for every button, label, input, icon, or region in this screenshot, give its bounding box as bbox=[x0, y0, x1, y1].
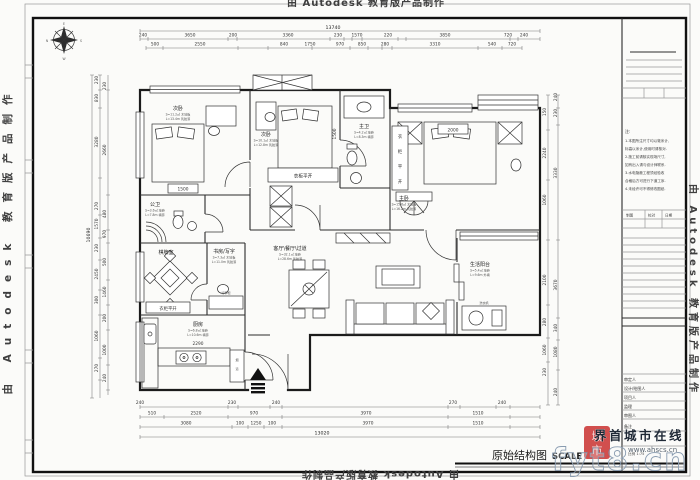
chair bbox=[265, 113, 275, 122]
mahjong-table bbox=[144, 250, 197, 309]
dim-value: 720 bbox=[508, 42, 516, 48]
dim-value: 510 bbox=[148, 411, 156, 417]
room-label-kitchen: 厨房 S=6.8㎡ 地砖 L=10.6m 墙砖 2290 bbox=[187, 321, 208, 347]
door-arc bbox=[191, 284, 207, 300]
svg-text:主卧: 主卧 bbox=[399, 195, 409, 202]
dim-value: 240 bbox=[139, 33, 147, 39]
dim-value: 970 bbox=[336, 42, 344, 48]
svg-text:L=16.2m 乳胶漆: L=16.2m 乳胶漆 bbox=[392, 206, 416, 211]
svg-text:合格后方可进行下道工序.: 合格后方可进行下道工序. bbox=[625, 178, 666, 183]
dim-value: 280 bbox=[381, 42, 389, 48]
dim-value: 3280 bbox=[94, 136, 100, 147]
flue-shaft bbox=[230, 350, 244, 382]
room-label-balcony: 生活阳台 S=5.4㎡ 地砖 L=9.6m 外墙 bbox=[470, 261, 490, 277]
dim-value: 540 bbox=[488, 42, 496, 48]
door-arc bbox=[426, 230, 456, 260]
field-label: 审图人 bbox=[624, 412, 636, 418]
inner-dim: 2290 bbox=[193, 341, 204, 347]
watermark-left: 由 Autodesk 教育版产品制作 bbox=[1, 85, 14, 394]
dim-value: 500 bbox=[151, 42, 159, 48]
floor-plan-sheet: E S W N bbox=[0, 0, 700, 480]
notes-paragraph: 1.本图所注尺寸均以毫米计, 标高以米计,使用时请核对. 2.施工前请核实现场尺… bbox=[625, 138, 669, 191]
svg-text:1.本图所注尺寸均以毫米计,: 1.本图所注尺寸均以毫米计, bbox=[625, 138, 669, 143]
dim-value: 3670 bbox=[553, 279, 559, 290]
dim-value: 230 bbox=[553, 109, 559, 117]
svg-text:L=8.3m 墙砖: L=8.3m 墙砖 bbox=[354, 134, 373, 139]
dim-value: 1060 bbox=[94, 330, 100, 341]
dim-value: 340 bbox=[553, 324, 559, 332]
bed bbox=[152, 124, 204, 182]
stove bbox=[176, 351, 206, 364]
compass-left-label: N bbox=[46, 39, 49, 43]
svg-text:校对: 校对 bbox=[648, 213, 656, 218]
svg-text:标高以米计,使用时请核对.: 标高以米计,使用时请核对. bbox=[625, 146, 667, 151]
watermark-right: 由 Autodesk 教育版产品制作 bbox=[687, 184, 700, 396]
watermark-top: 由 Autodesk 教育版产品制作 bbox=[287, 0, 445, 9]
site-name: 界首城市在线 bbox=[594, 428, 684, 443]
svg-text:S=11.2㎡ 木地板: S=11.2㎡ 木地板 bbox=[166, 112, 191, 117]
door-arc bbox=[225, 162, 250, 187]
svg-text:公卫: 公卫 bbox=[150, 202, 160, 208]
dim-value: 3080 bbox=[181, 421, 192, 427]
entry-arrow-icon bbox=[250, 368, 266, 393]
svg-text:烟: 烟 bbox=[235, 357, 238, 362]
compass-right-label: S bbox=[80, 39, 82, 43]
console-cabinet bbox=[336, 233, 390, 243]
dim-value: 240 bbox=[272, 400, 280, 406]
dim-total: 13740 bbox=[326, 25, 341, 31]
dim-value: 230 bbox=[228, 400, 236, 406]
mini-table: 制图 校对 日期 bbox=[622, 210, 686, 228]
furniture bbox=[142, 96, 522, 393]
dim-value: 230 bbox=[334, 33, 342, 39]
dim-value: 480 bbox=[102, 210, 108, 218]
dim-value: 150 bbox=[542, 108, 548, 116]
door-arc bbox=[295, 205, 320, 230]
svg-text:生活阳台: 生活阳台 bbox=[470, 261, 490, 268]
dim-value: 3970 bbox=[361, 411, 372, 417]
dim-value: 270 bbox=[94, 202, 100, 210]
room-label-living: 客厅\餐厅\过道 S=32.1㎡ 地砖 L=28.6m 乳胶漆 bbox=[273, 245, 306, 261]
svg-text:厨房: 厨房 bbox=[193, 321, 203, 328]
field-label: 审定人 bbox=[624, 376, 636, 382]
dim-value: 840 bbox=[280, 42, 288, 48]
dim-value: 2550 bbox=[195, 42, 206, 48]
dim-value: 1250 bbox=[251, 421, 262, 427]
dim-value: 240 bbox=[520, 33, 528, 39]
luggage-cabinet-label: 行李柜 bbox=[221, 290, 230, 295]
dim-value: 2100 bbox=[542, 274, 548, 285]
room-label-bedroom2: 次卧 S=10.1㎡ 木地板 L=12.8m 乳胶漆 1500 bbox=[254, 128, 338, 147]
dim-value: 230 bbox=[94, 244, 100, 252]
desk bbox=[206, 106, 236, 126]
dim-value: 240 bbox=[553, 93, 559, 101]
overlay-watermark: fyt8.cn bbox=[552, 442, 688, 478]
right-dimension-chain: 150 2240 1060 2100 280 1060 230 240 230 … bbox=[542, 93, 560, 405]
room-label-bath-public: 公卫 S=3.6㎡ 地砖 L=7.8m 墙砖 bbox=[145, 202, 165, 217]
wardrobe-label-box: 衣柜平开 bbox=[146, 302, 190, 313]
sheet-inner-frame bbox=[33, 18, 686, 472]
wardrobe-label-vertical: 衣 柜 平 开 bbox=[392, 126, 408, 190]
washing-machine bbox=[462, 306, 506, 330]
dim-value: 100 bbox=[236, 421, 244, 427]
chair bbox=[209, 127, 220, 136]
inner-dim: 1500 bbox=[178, 187, 189, 193]
bathroom-fixtures bbox=[344, 96, 384, 184]
dim-value: 2660 bbox=[102, 144, 108, 155]
svg-text:衣: 衣 bbox=[398, 133, 403, 140]
title-block: 注: 1.本图所注尺寸均以毫米计, 标高以米计,使用时请核对. 2.施工前请核实… bbox=[622, 52, 686, 456]
dim-value: 3650 bbox=[185, 33, 196, 39]
dim-value: 2240 bbox=[542, 147, 548, 158]
dim-value: 1510 bbox=[473, 421, 484, 427]
top-dimension-chain: 13740 240 3650 200 3360 230 1570 220 385… bbox=[139, 25, 540, 50]
dim-value: 3310 bbox=[430, 42, 441, 48]
svg-text:L=10.6m 墙砖: L=10.6m 墙砖 bbox=[187, 332, 208, 337]
dim-value: 500 bbox=[102, 258, 108, 266]
dim-value: 3360 bbox=[283, 33, 294, 39]
dim-value: 3850 bbox=[440, 33, 451, 39]
svg-text:3.水电隐蔽工程须经验收: 3.水电隐蔽工程须经验收 bbox=[625, 170, 665, 175]
dim-value: 300 bbox=[94, 296, 100, 304]
svg-text:L=28.6m 乳胶漆: L=28.6m 乳胶漆 bbox=[278, 256, 302, 261]
dim-value: 1510 bbox=[473, 411, 484, 417]
svg-text:书房/写字: 书房/写字 bbox=[213, 248, 235, 255]
dim-value: 2450 bbox=[94, 268, 100, 279]
sofa bbox=[346, 300, 454, 334]
balcony-slider bbox=[454, 264, 464, 300]
room-label-bedroom1: 次卧 S=11.2㎡ 木地板 L=13.4m 乳胶漆 1500 bbox=[166, 105, 198, 193]
dim-value: 1000 bbox=[102, 344, 108, 355]
door-arc bbox=[205, 214, 223, 232]
tv-cabinet bbox=[376, 266, 420, 288]
dim-value: 230 bbox=[542, 368, 548, 376]
svg-text:柜: 柜 bbox=[398, 148, 403, 155]
dim-value: 3330 bbox=[553, 167, 559, 178]
notes-label: 注: bbox=[625, 128, 630, 134]
svg-text:客厅\餐厅\过道: 客厅\餐厅\过道 bbox=[273, 245, 306, 252]
dim-value: 1080 bbox=[553, 346, 559, 357]
svg-text:L=11.0m 乳胶漆: L=11.0m 乳胶漆 bbox=[212, 259, 236, 264]
dim-value: 2520 bbox=[191, 411, 202, 417]
svg-text:如有出入请与设计师联系.: 如有出入请与设计师联系. bbox=[625, 162, 666, 167]
watermark-bottom: 由 Autodesk 教育版产品制作 bbox=[301, 468, 459, 480]
compass-bottom-label: W bbox=[62, 57, 65, 61]
bay-window bbox=[253, 75, 538, 110]
svg-text:S=6.8㎡ 地砖: S=6.8㎡ 地砖 bbox=[188, 328, 208, 333]
svg-text:S=10.1㎡ 木地板: S=10.1㎡ 木地板 bbox=[254, 138, 279, 143]
washer-label: 洗衣机 bbox=[479, 300, 489, 305]
dim-value: 240 bbox=[553, 388, 559, 396]
room-label-bath-master: 主卫 S=4.2㎡ 地砖 L=8.3m 墙砖 bbox=[354, 123, 374, 139]
svg-text:衣柜平开: 衣柜平开 bbox=[294, 173, 313, 180]
dining-table bbox=[289, 260, 329, 318]
svg-text:道: 道 bbox=[235, 366, 238, 371]
svg-text:衣柜平开: 衣柜平开 bbox=[159, 305, 177, 312]
dim-value: 1570 bbox=[352, 33, 363, 39]
dim-value: 270 bbox=[449, 400, 457, 406]
stool bbox=[511, 159, 521, 171]
svg-text:制图: 制图 bbox=[626, 213, 634, 218]
compass-top-label: E bbox=[63, 22, 65, 26]
inner-dim: 2000 bbox=[448, 128, 459, 134]
svg-text:L=7.8m 墙砖: L=7.8m 墙砖 bbox=[145, 212, 164, 217]
dim-value: 720 bbox=[504, 33, 512, 39]
svg-text:开: 开 bbox=[398, 179, 403, 185]
bed bbox=[278, 106, 332, 168]
cabinet-x-box bbox=[270, 186, 292, 227]
dim-value: 280 bbox=[542, 318, 548, 326]
dim-value: 270 bbox=[94, 364, 100, 372]
dim-value: 3970 bbox=[363, 421, 374, 427]
dim-value: 1750 bbox=[305, 42, 316, 48]
svg-text:L=9.6m 外墙: L=9.6m 外墙 bbox=[470, 272, 489, 277]
dim-value: 230 bbox=[102, 82, 108, 90]
dim-value: 240 bbox=[498, 400, 506, 406]
svg-text:主卫: 主卫 bbox=[359, 123, 369, 130]
north-compass-icon: E S W N bbox=[46, 22, 82, 61]
svg-text:次卧: 次卧 bbox=[173, 105, 183, 112]
dim-value: 1060 bbox=[542, 194, 548, 205]
svg-text:S=3.6㎡ 地砖: S=3.6㎡ 地砖 bbox=[145, 208, 165, 213]
dim-value: 830 bbox=[94, 94, 100, 102]
svg-text:L=13.4m 乳胶漆: L=13.4m 乳胶漆 bbox=[166, 116, 190, 121]
field-label: 项目人 bbox=[624, 394, 636, 400]
dim-total: 13020 bbox=[315, 431, 330, 437]
room-label-mahjong: 棋牌室 bbox=[158, 249, 173, 256]
svg-text:S=7.3㎡ 木地板: S=7.3㎡ 木地板 bbox=[213, 255, 236, 260]
svg-text:日期: 日期 bbox=[665, 213, 673, 218]
dim-value: 970 bbox=[102, 230, 108, 238]
signature-fields: 审定人 设计/绘图人 项目人 监理 审图人 备注 bbox=[622, 374, 686, 431]
dim-value: 850 bbox=[358, 42, 366, 48]
svg-text:2.施工前请核实现场尺寸,: 2.施工前请核实现场尺寸, bbox=[625, 154, 666, 159]
inner-dim: 1500 bbox=[332, 128, 338, 139]
dim-value: 100 bbox=[268, 421, 276, 427]
svg-text:次卧: 次卧 bbox=[261, 131, 271, 138]
svg-text:平: 平 bbox=[398, 164, 403, 170]
field-label: 设计/绘图人 bbox=[624, 385, 645, 391]
dim-value: 970 bbox=[250, 411, 258, 417]
revision-rows bbox=[622, 238, 686, 308]
dim-total: 10690 bbox=[86, 228, 92, 243]
left-dimension-chain: 10690 230 830 3280 270 1570 230 2450 300… bbox=[86, 75, 110, 398]
svg-text:S=4.2㎡ 地砖: S=4.2㎡ 地砖 bbox=[354, 130, 374, 135]
svg-text:S=32.1㎡ 地砖: S=32.1㎡ 地砖 bbox=[279, 252, 301, 257]
svg-text:S=5.4㎡ 地砖: S=5.4㎡ 地砖 bbox=[470, 268, 490, 273]
dim-value: 200 bbox=[102, 314, 108, 322]
svg-text:4.未经许可不得修改图纸.: 4.未经许可不得修改图纸. bbox=[625, 186, 666, 191]
dim-value: 240 bbox=[136, 400, 144, 406]
field-label: 监理 bbox=[624, 403, 632, 409]
site-watermark: 城 市 界首城市在线 www.ahscs.cn fyt8.cn bbox=[552, 426, 688, 478]
svg-text:S=15.6㎡ 木地板: S=15.6㎡ 木地板 bbox=[392, 202, 417, 207]
dim-value: 220 bbox=[384, 33, 392, 39]
bottom-dimension-chain: 240 230 240 270 240 510 2520 970 3970 15… bbox=[136, 400, 540, 439]
svg-text:L=12.8m 乳胶漆: L=12.8m 乳胶漆 bbox=[254, 142, 278, 147]
dim-value: 1460 bbox=[102, 286, 108, 297]
dim-value: 1060 bbox=[542, 344, 548, 355]
dim-value: 240 bbox=[102, 374, 108, 382]
dim-value: 230 bbox=[94, 76, 100, 84]
desk bbox=[209, 296, 243, 309]
wardrobe-label-box: 衣柜平开 bbox=[268, 168, 338, 182]
page-title: 原始结构图 bbox=[492, 448, 547, 462]
dim-value: 200 bbox=[229, 33, 237, 39]
dim-value: 1570 bbox=[94, 218, 100, 229]
